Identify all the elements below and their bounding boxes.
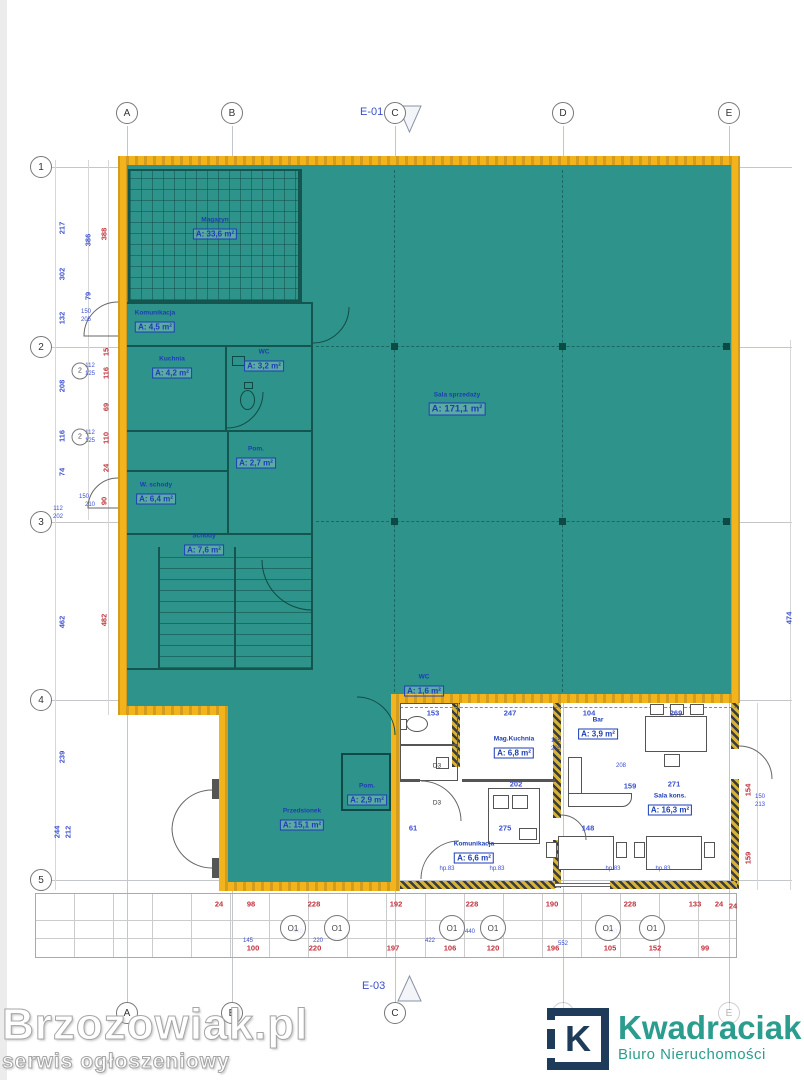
dimension-label: hp.83 [439,866,454,872]
room-label: Magazyn A: 33,6 m² [193,217,237,242]
room-label: Bar A: 3,9 m² [578,717,618,742]
dimension-line [88,160,89,520]
grid-dashed-line [316,346,730,347]
dimension-label: 217 [58,222,67,235]
chair [546,842,557,858]
brand-logo: K Kwadraciak Biuro Nieruchomości [547,1008,801,1070]
grid-column-bubble: A [116,102,138,124]
grid-column-bubble: E [718,102,740,124]
dimension-label: 208 [58,380,67,393]
grid-dashed-line [316,521,730,522]
plan-marker: O1 [595,915,621,941]
door-arc [739,746,772,779]
dimension-label: 24 [215,900,223,909]
dimension-label: 24 [102,464,111,472]
plan-marker: 2 [72,429,89,446]
section-marker-e03: E-03 [362,980,385,992]
door-arc [172,790,212,830]
dimension-label: 205 [551,746,561,752]
wall-segment [462,779,555,782]
grid-row-bubble: 2 [30,336,52,358]
dimension-label: 152 [649,944,662,953]
chair [690,704,704,715]
dimension-label: 159 [744,852,753,865]
dimension-label: 220 [313,938,323,944]
room-name: Bar [578,717,618,724]
dimension-label: 210 [85,502,95,508]
dimension-label: 228 [308,900,321,909]
room-label: Komunikacja A: 4,5 m² [135,310,175,335]
dimension-label: 100 [247,944,260,953]
window-segment [555,883,610,887]
logo-square-icon: K [547,1008,609,1070]
room-area: A: 6,4 m² [136,494,176,505]
interior-wall [300,169,302,302]
dimension-label: 202 [53,514,63,520]
room-area: A: 33,6 m² [193,229,237,240]
dimension-label: 228 [466,900,479,909]
dimension-label: 150 [755,794,765,800]
table [645,716,707,752]
sink-fixture [232,356,245,366]
interior-wall [127,430,313,432]
room-area: A: 2,9 m² [347,795,387,806]
dimension-label: 116 [58,430,67,442]
room-name: Magazyn [193,217,237,224]
grid-column-bubble: D [552,102,574,124]
wall-segment [610,881,737,889]
plan-marker: O1 [324,915,350,941]
dimension-label: 104 [583,709,596,718]
plan-marker: O1 [480,915,506,941]
room-area: A: 2,7 m² [236,458,276,469]
dimension-label: 190 [546,900,559,909]
structural-column [723,343,730,350]
wall-segment [400,744,458,746]
grid-row-bubble: 3 [30,511,52,533]
dimension-label: 482 [100,614,109,627]
dimension-label: 440 [465,929,475,935]
dimension-label: 112 [53,506,63,512]
dimension-label: 145 [243,938,253,944]
dimension-label: 247 [504,709,517,718]
kitchen-stove [519,828,537,840]
bar-counter [568,793,632,807]
dimension-label: 208 [616,763,626,769]
section-triangle-bottom [398,976,421,1001]
interior-wall [225,345,227,432]
dimension-label: 474 [785,612,794,625]
chair [634,842,645,858]
chair [650,704,664,715]
room-label: Kuchnia A: 4,2 m² [152,356,192,381]
dimension-label: 213 [755,802,765,808]
wall-segment [212,779,220,799]
structural-column [559,343,566,350]
room-area: A: 16,3 m² [648,805,692,816]
plan-marker: O1 [439,915,465,941]
room-label: Mag.Kuchnia A: 6,8 m² [494,736,534,761]
wall-segment [400,881,555,889]
door-arc [172,828,212,868]
room-label: W. schody A: 6,4 m² [136,482,176,507]
stair-divider [234,547,236,668]
grid-row-bubble: 1 [30,156,52,178]
room-name: Kuchnia [152,356,192,363]
dimension-label: 228 [624,900,637,909]
kitchen-sink [512,795,528,809]
room-label: Komunikacja A: 6,6 m² [454,841,494,866]
dimension-label: 150 [79,494,89,500]
logo-tagline: Biuro Nieruchomości [618,1046,801,1063]
dimension-label: 98 [247,900,255,909]
watermark: Brzozowiak.pl serwis ogłoszeniowy [2,1000,308,1074]
dimension-label: 275 [499,824,512,833]
wall-segment [731,779,739,889]
interior-wall [127,668,313,670]
room-name: Sala kons. [648,793,692,800]
logo-brand-name: Kwadraciak [618,1010,801,1046]
toilet-fixture [240,390,255,410]
interior-wall [127,302,313,304]
structural-column [391,518,398,525]
dimension-label: hp.83 [655,866,670,872]
table [558,836,614,870]
room-name: Pom. [236,446,276,453]
dimension-label: hp.83 [489,866,504,872]
plan-marker: D3 [433,763,441,770]
dimension-label: 24 [729,902,737,911]
room-name: Pom. [347,783,387,790]
dimension-label: 159 [624,782,637,791]
room-area: A: 1,6 m² [404,686,444,697]
room-name: Sala sprzedaży [429,392,486,399]
structural-column [723,518,730,525]
dimension-label: 154 [744,784,753,797]
dimension-label: 90 [100,497,109,505]
room-name: WC [244,349,284,356]
dimension-label: 244 [53,826,62,839]
room-area: A: 3,2 m² [244,361,284,372]
wall-segment [212,858,220,878]
room-area: A: 3,9 m² [578,729,618,740]
room-label: Sala kons. A: 16,3 m² [648,793,692,818]
plan-marker: 2 [72,363,89,380]
dimension-label: 205 [81,317,91,323]
dimension-label: 69 [102,403,111,411]
room-area: A: 7,6 m² [184,545,224,556]
dimension-label: 239 [58,751,67,764]
room-label: Schody A: 7,6 m² [184,533,224,558]
dimension-label: 120 [487,944,500,953]
dimension-label: 271 [668,780,681,789]
dimension-label: 197 [387,944,400,953]
dimension-label: 462 [58,616,67,629]
grid-row-bubble: 5 [30,869,52,891]
interior-wall [127,345,313,347]
dimension-label: 132 [58,312,67,325]
floor-plan-page: Magazyn A: 33,6 m² Komunikacja A: 4,5 m²… [0,0,804,1080]
chair [664,754,680,767]
page-edge-shadow [0,0,7,1080]
dimension-label: 202 [510,780,523,789]
dimension-label: 148 [582,824,595,833]
room-area: A: 171,1 m² [429,403,486,416]
dimension-line [55,160,56,890]
room-name: Przedsionek [280,808,324,815]
table [646,836,702,870]
interior-wall [227,430,229,533]
dimension-label: 133 [689,900,702,909]
grid-column-bubble: B [221,102,243,124]
dimension-label: 79 [84,292,93,300]
watermark-subtitle: serwis ogłoszeniowy [2,1050,308,1074]
toilet-tank [244,382,253,389]
room-area: A: 6,6 m² [454,853,494,864]
dimension-label: 388 [100,228,109,241]
dimension-label: 106 [444,944,457,953]
kitchen-sink [493,795,509,809]
dimension-label: 150 [81,309,91,315]
room-label: Przedsionek A: 15,1 m² [280,808,324,833]
dimension-label: hp.83 [605,866,620,872]
structural-column [391,343,398,350]
dimension-label: 105 [604,944,617,953]
section-marker-e01: E-01 [360,106,383,118]
plan-marker: O1 [639,915,665,941]
dimension-label: 269 [670,709,683,718]
bar-counter [568,757,582,797]
room-name: WC [404,674,444,681]
dimension-label: 99 [701,944,709,953]
room-name: Schody [184,533,224,540]
logo-letter: K [565,1018,591,1060]
room-name: Komunikacja [135,310,175,317]
logo-text: Kwadraciak Biuro Nieruchomości [618,1008,801,1063]
chair [704,842,715,858]
room-label: Pom. A: 2,7 m² [236,446,276,471]
room-area: A: 4,5 m² [135,322,175,333]
dimension-label: 302 [58,268,67,281]
grid-dashed-line [394,170,395,692]
watermark-title: Brzozowiak.pl [2,1000,308,1050]
chair [616,842,627,858]
grid-dashed-line [562,170,563,692]
dimension-label: 386 [84,234,93,247]
dimension-label: 116 [102,367,111,379]
toilet-fixture [406,716,428,732]
wall-segment [553,703,561,818]
room-label: Sala sprzedaży A: 171,1 m² [429,392,486,417]
dimension-label: 15 [102,348,111,356]
room-name: Komunikacja [454,841,494,848]
wall-segment [731,703,739,749]
room-area: A: 15,1 m² [280,820,324,831]
dimension-label: 165 [551,738,561,744]
dimension-label: 192 [390,900,403,909]
room-area: A: 6,8 m² [494,748,534,759]
room-label: WC A: 1,6 m² [404,674,444,699]
grid-row-bubble: 4 [30,689,52,711]
grid-column-bubble: C [384,1002,406,1024]
structural-column [559,518,566,525]
dimension-label: 110 [102,432,111,444]
interior-wall [127,470,227,472]
dimension-label: 24 [715,900,723,909]
grid-column-bubble: C [384,102,406,124]
dimension-label: 74 [58,468,67,476]
dimension-label: 212 [64,826,73,839]
plan-marker: O1 [280,915,306,941]
room-name: W. schody [136,482,176,489]
dimension-label: 153 [427,709,440,718]
dimension-label: 61 [409,824,417,833]
room-label: Pom. A: 2,9 m² [347,783,387,808]
room-name: Mag.Kuchnia [494,736,534,743]
room-area: A: 4,2 m² [152,368,192,379]
dimension-label: 220 [309,944,322,953]
dimension-label: 552 [558,941,568,947]
plan-marker: D3 [433,800,441,807]
dimension-label: 422 [425,938,435,944]
toilet-tank [400,719,407,730]
room-label: WC A: 3,2 m² [244,349,284,374]
